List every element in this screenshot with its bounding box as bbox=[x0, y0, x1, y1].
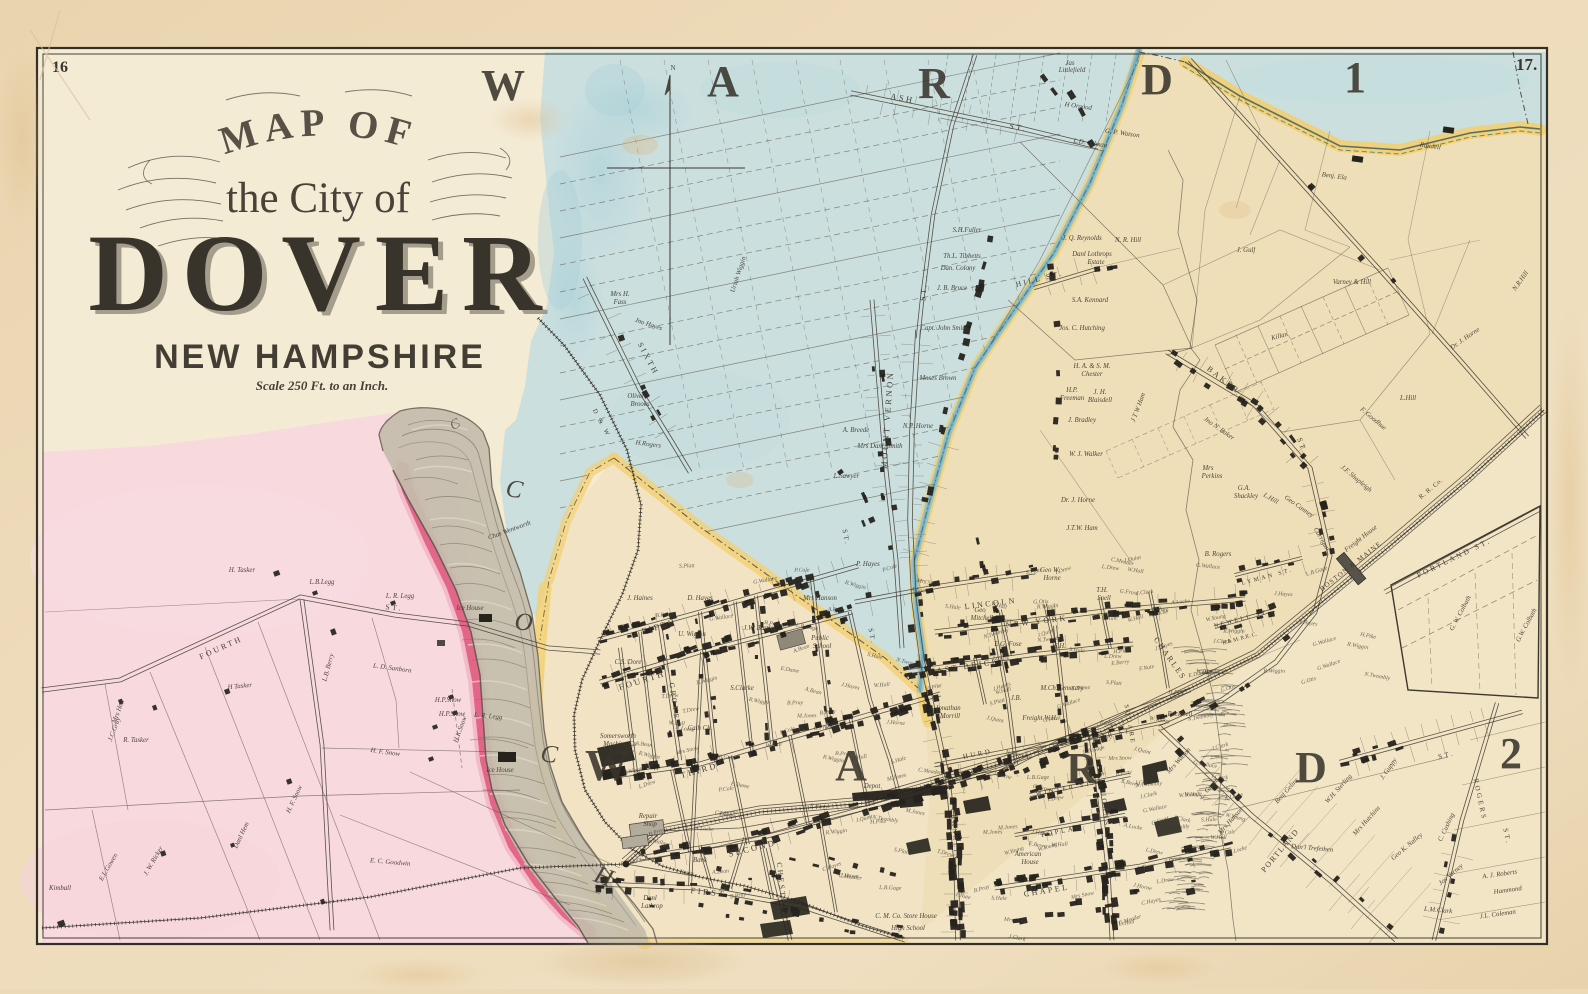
svg-text:U. Wiggin: U. Wiggin bbox=[678, 631, 706, 638]
svg-text:Horne: Horne bbox=[1042, 575, 1060, 582]
svg-text:S.Platt: S.Platt bbox=[679, 563, 695, 569]
svg-text:Perkins: Perkins bbox=[1201, 473, 1223, 480]
svg-text:High School: High School bbox=[890, 925, 925, 932]
svg-text:H.P.: H.P. bbox=[1065, 387, 1078, 394]
svg-text:Mrs Hanson: Mrs Hanson bbox=[802, 595, 837, 602]
svg-text:J.Clark: J.Clark bbox=[1213, 639, 1231, 645]
svg-text:Morrill: Morrill bbox=[939, 713, 960, 720]
svg-text:W. J. Walker: W. J. Walker bbox=[1069, 451, 1103, 458]
svg-text:1: 1 bbox=[1344, 53, 1366, 102]
svg-text:Jos. C. Hutching: Jos. C. Hutching bbox=[1059, 325, 1105, 332]
svg-text:B.Pray: B.Pray bbox=[787, 700, 804, 706]
svg-text:S.Hale: S.Hale bbox=[1201, 817, 1217, 824]
svg-text:H.Pike: H.Pike bbox=[1112, 648, 1130, 655]
svg-text:Freeman: Freeman bbox=[1059, 395, 1085, 402]
svg-text:H.P.Snow: H.P.Snow bbox=[438, 711, 466, 718]
svg-text:T.H.: T.H. bbox=[1096, 587, 1108, 594]
svg-text:School: School bbox=[813, 643, 832, 650]
svg-text:Repair: Repair bbox=[638, 813, 658, 820]
svg-text:C.S. Dore: C.S. Dore bbox=[615, 659, 642, 666]
svg-text:J. Haines: J. Haines bbox=[627, 595, 653, 602]
svg-text:Ice House: Ice House bbox=[485, 767, 513, 774]
svg-text:Mrs Snow: Mrs Snow bbox=[1107, 755, 1132, 762]
svg-text:F.Nute: F.Nute bbox=[1101, 616, 1118, 623]
svg-text:J.Clark: J.Clark bbox=[992, 656, 1010, 662]
svg-text:S.H.Fuller: S.H.Fuller bbox=[953, 227, 982, 234]
svg-text:L.B.Gage: L.B.Gage bbox=[878, 885, 902, 892]
svg-text:L.Hill: L.Hill bbox=[1399, 395, 1416, 402]
svg-text:J.B.: J.B. bbox=[1011, 695, 1022, 702]
svg-text:J. Bradley: J. Bradley bbox=[1068, 417, 1097, 424]
svg-text:ST.: ST. bbox=[918, 282, 928, 301]
svg-text:Kimball: Kimball bbox=[48, 885, 71, 892]
svg-text:A: A bbox=[707, 57, 739, 106]
svg-text:R. Tasker: R. Tasker bbox=[122, 737, 149, 744]
svg-text:H.P.Snow: H.P.Snow bbox=[434, 697, 462, 704]
svg-text:Capt. John Smith: Capt. John Smith bbox=[920, 325, 968, 332]
svg-text:NEW HAMPSHIRE: NEW HAMPSHIRE bbox=[154, 338, 486, 376]
svg-text:Public: Public bbox=[810, 635, 829, 642]
svg-text:Varney & Hill: Varney & Hill bbox=[1333, 279, 1371, 286]
svg-text:S.A. Kennard: S.A. Kennard bbox=[1072, 297, 1109, 304]
svg-text:Littlefield: Littlefield bbox=[1058, 67, 1086, 74]
svg-text:C. M. Co. Store House: C. M. Co. Store House bbox=[875, 913, 936, 920]
svg-text:R: R bbox=[918, 59, 951, 108]
svg-text:W.Hall: W.Hall bbox=[874, 682, 891, 689]
svg-text:L.B.Gage: L.B.Gage bbox=[1026, 775, 1050, 781]
svg-text:Moses Brown: Moses Brown bbox=[919, 375, 958, 382]
svg-text:J.Hayes: J.Hayes bbox=[1274, 591, 1294, 598]
svg-text:Fass: Fass bbox=[613, 299, 627, 306]
svg-text:Shop: Shop bbox=[643, 821, 657, 828]
svg-text:Jonathan: Jonathan bbox=[935, 705, 961, 712]
svg-text:Danl Lothrops: Danl Lothrops bbox=[1071, 251, 1112, 258]
svg-text:G.A.: G.A. bbox=[1238, 485, 1251, 492]
svg-text:M.Jones: M.Jones bbox=[796, 713, 817, 719]
svg-text:Mrs Danl. Smith: Mrs Danl. Smith bbox=[856, 443, 903, 450]
svg-text:O: O bbox=[513, 608, 533, 636]
svg-text:B. Rogers: B. Rogers bbox=[1205, 551, 1232, 558]
svg-text:Brooks: Brooks bbox=[630, 401, 649, 408]
svg-text:A. Breede: A. Breede bbox=[842, 427, 870, 434]
svg-text:P.Cole: P.Cole bbox=[793, 568, 810, 574]
svg-text:Dr. J. Horne: Dr. J. Horne bbox=[1060, 497, 1095, 504]
svg-text:A: A bbox=[835, 741, 867, 790]
svg-text:H.Pike: H.Pike bbox=[1167, 690, 1184, 696]
svg-text:W.Hall: W.Hall bbox=[1211, 835, 1227, 841]
svg-text:L.B.Legg: L.B.Legg bbox=[309, 579, 336, 586]
svg-text:House: House bbox=[1020, 859, 1038, 866]
svg-text:L. R. Legg: L. R. Legg bbox=[385, 593, 415, 600]
svg-text:Blaisdell: Blaisdell bbox=[1088, 397, 1112, 404]
svg-text:R.Wiggin: R.Wiggin bbox=[1263, 668, 1286, 674]
svg-text:ST.: ST. bbox=[385, 602, 403, 612]
svg-text:S.Clarke: S.Clarke bbox=[730, 685, 754, 692]
svg-text:Danl: Danl bbox=[642, 895, 657, 902]
svg-text:Estate: Estate bbox=[1087, 259, 1105, 266]
svg-text:D: D bbox=[1141, 55, 1173, 104]
svg-text:S.H.: S.H. bbox=[1054, 643, 1066, 650]
svg-text:T.Drew: T.Drew bbox=[997, 618, 1014, 625]
svg-text:D. Hayes: D. Hayes bbox=[686, 595, 713, 602]
svg-text:W.Hall: W.Hall bbox=[669, 720, 686, 727]
svg-text:P. Hayes: P. Hayes bbox=[855, 561, 880, 568]
svg-text:Mrs H.: Mrs H. bbox=[609, 291, 630, 298]
svg-text:R: R bbox=[1066, 744, 1099, 793]
svg-text:G.Otis: G.Otis bbox=[1033, 599, 1049, 606]
svg-text:Bank: Bank bbox=[693, 857, 708, 864]
svg-text:J. H.: J. H. bbox=[1093, 389, 1106, 396]
svg-text:Mitchell: Mitchell bbox=[970, 615, 994, 622]
svg-text:Geo: Geo bbox=[974, 607, 986, 614]
svg-text:J. Q. Reynolds: J. Q. Reynolds bbox=[1062, 235, 1102, 242]
svg-text:J. Gulf: J. Gulf bbox=[1237, 247, 1257, 254]
svg-text:N: N bbox=[670, 64, 675, 72]
svg-text:H. A. & S. M.: H. A. & S. M. bbox=[1073, 363, 1111, 370]
svg-text:Dan. Colony: Dan. Colony bbox=[940, 265, 977, 272]
svg-text:E.G. Fose: E.G. Fose bbox=[993, 641, 1021, 648]
svg-text:17.: 17. bbox=[1516, 55, 1537, 74]
svg-text:DOVER: DOVER bbox=[88, 212, 555, 334]
svg-text:Chester: Chester bbox=[1081, 371, 1102, 378]
svg-text:Mrs: Mrs bbox=[1202, 465, 1214, 472]
svg-text:M.Jones: M.Jones bbox=[982, 829, 1003, 836]
svg-text:E.Berry: E.Berry bbox=[809, 803, 829, 810]
svg-text:Snell: Snell bbox=[1097, 595, 1111, 602]
svg-text:Scale 250 Ft. to an Inch.: Scale 250 Ft. to an Inch. bbox=[256, 378, 389, 393]
svg-text:2: 2 bbox=[1500, 729, 1522, 778]
svg-text:N. R. Hill: N. R. Hill bbox=[1114, 237, 1141, 244]
svg-text:J. B. Bruce: J. B. Bruce bbox=[937, 285, 967, 292]
svg-text:R.Wiggin: R.Wiggin bbox=[1222, 628, 1245, 634]
svg-text:Ice House: Ice House bbox=[455, 605, 483, 612]
svg-text:J.T.W. Ham: J.T.W. Ham bbox=[1066, 525, 1097, 532]
svg-text:Shackley: Shackley bbox=[1234, 493, 1259, 500]
svg-text:S.Hale: S.Hale bbox=[991, 895, 1007, 901]
svg-text:Oliver: Oliver bbox=[627, 393, 645, 400]
svg-text:W: W bbox=[585, 741, 629, 790]
svg-text:Jas: Jas bbox=[1065, 60, 1074, 67]
svg-text:N.P. Horne: N.P. Horne bbox=[902, 423, 933, 430]
svg-text:J. Sawyer: J. Sawyer bbox=[833, 473, 860, 480]
svg-text:A.Bean: A.Bean bbox=[827, 607, 845, 614]
svg-text:Somersworth: Somersworth bbox=[600, 733, 636, 740]
svg-text:A.Locke: A.Locke bbox=[694, 826, 715, 833]
svg-text:Lathrop: Lathrop bbox=[640, 903, 663, 910]
svg-text:D: D bbox=[1295, 743, 1327, 792]
svg-text:Th.L. Tibbetts: Th.L. Tibbetts bbox=[943, 253, 981, 260]
svg-text:H. Tasker: H. Tasker bbox=[228, 567, 256, 574]
